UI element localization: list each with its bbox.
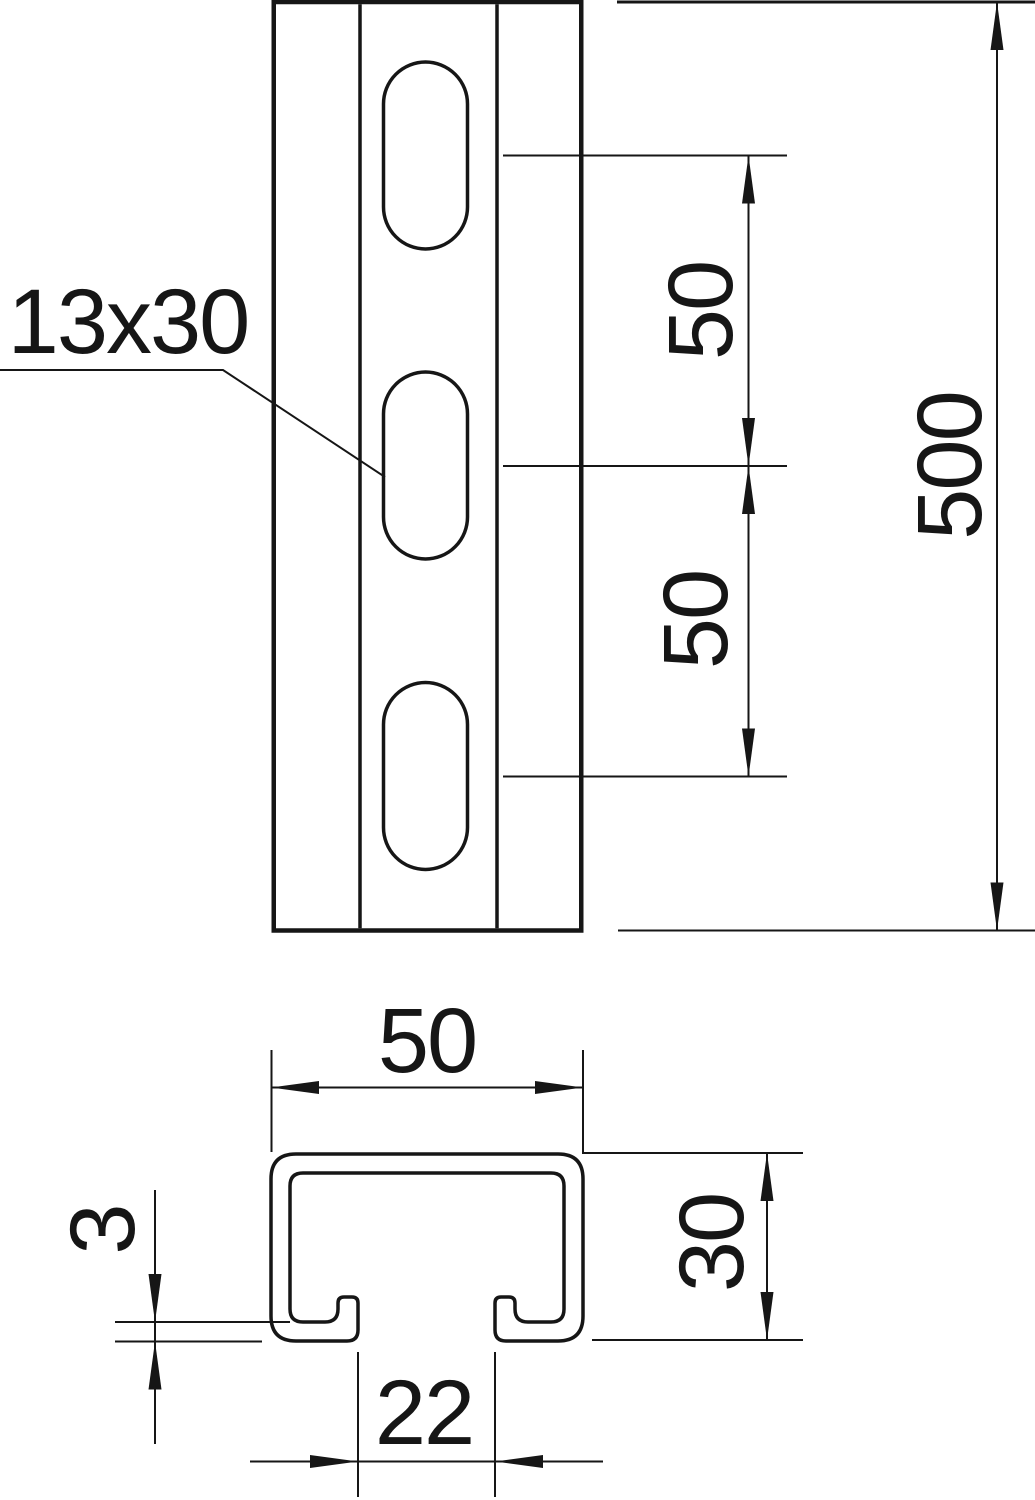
arrowhead-pitch1-top	[742, 156, 755, 204]
arrowhead-opening-right	[495, 1455, 543, 1468]
arrowhead-opening-left	[310, 1455, 358, 1468]
slot-size-label: 13x30	[8, 276, 249, 368]
cross-section	[271, 1154, 583, 1341]
slot-hole-1	[384, 62, 468, 249]
technical-drawing-canvas: 13x30 50 50 500 50 3 30 22	[0, 0, 1035, 1500]
profile-outline	[271, 1154, 583, 1341]
profile-height-label: 30	[666, 1194, 758, 1292]
slot-size-leader-line	[0, 370, 385, 477]
hole-pitch-lower-label: 50	[650, 571, 742, 669]
drawing-geometry	[0, 0, 1035, 1500]
arrowhead-length-bottom	[991, 883, 1004, 931]
ext-line-width-right-and-height-top	[583, 1050, 803, 1153]
arrowhead-width-right	[535, 1081, 583, 1094]
arrowhead-thickness-upper	[149, 1274, 162, 1322]
slot-hole-3	[384, 683, 468, 870]
slot-hole-2	[384, 372, 468, 559]
arrowhead-width-left	[271, 1081, 319, 1094]
front-view	[0, 2, 581, 931]
hole-pitch-upper-label: 50	[655, 262, 747, 360]
arrowhead-height-bottom	[761, 1292, 774, 1340]
arrowhead-pitch1-bottom	[742, 418, 755, 466]
wall-thickness-label: 3	[57, 1205, 149, 1254]
profile-width-label: 50	[378, 995, 476, 1087]
slot-opening-label: 22	[375, 1367, 473, 1459]
arrowhead-pitch2-top	[742, 466, 755, 514]
arrowhead-pitch2-bottom	[742, 729, 755, 777]
arrowhead-thickness-lower	[149, 1342, 162, 1390]
arrowhead-length-top	[991, 2, 1004, 50]
rail-length-label: 500	[904, 392, 996, 540]
